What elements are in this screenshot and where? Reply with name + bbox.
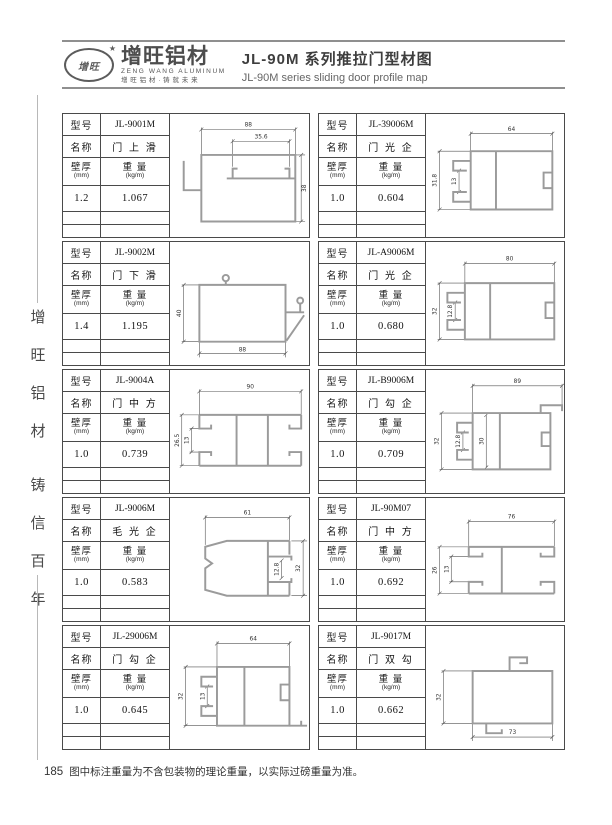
profile-card: 型号 JL-39006M 名称 门 光 企 壁厚(mm) 重 量(kg/m) 1… xyxy=(318,113,565,238)
thickness-value: 1.0 xyxy=(63,570,101,596)
page-title: JL-90M 系列推拉门型材图 xyxy=(242,48,433,69)
thickness-value: 1.0 xyxy=(63,698,101,724)
profile-card: 型号 JL-90M07 名称 门 中 方 壁厚(mm) 重 量(kg/m) 1.… xyxy=(318,497,565,622)
brand-name-cn: 增旺铝材 xyxy=(121,46,226,67)
slogan-char: 增 xyxy=(29,306,47,327)
empty-cell xyxy=(63,596,101,609)
spec-table: 型号 JL-A9006M 名称 门 光 企 壁厚(mm) 重 量(kg/m) 1… xyxy=(319,242,426,365)
name-value: 门 中 方 xyxy=(101,392,169,414)
profile-card: 型号 JL-B9006M 名称 门 勾 企 壁厚(mm) 重 量(kg/m) 1… xyxy=(318,369,565,494)
dim-label: 12.8 xyxy=(448,304,454,317)
weight-header: 重 量(kg/m) xyxy=(101,542,169,570)
slogan-char: 旺 xyxy=(29,344,47,365)
empty-cell xyxy=(319,353,357,365)
thickness-unit: (mm) xyxy=(330,557,345,564)
profile-card: 型号 JL-9004A 名称 门 中 方 壁厚(mm) 重 量(kg/m) 1.… xyxy=(62,369,310,494)
thickness-header: 壁厚(mm) xyxy=(319,286,357,314)
name-value: 毛 光 企 xyxy=(101,520,169,542)
empty-cell xyxy=(63,468,101,481)
dimension-lines: 80 32 12.8 xyxy=(433,257,557,342)
weight-value: 0.604 xyxy=(357,186,425,212)
spec-table: 型号 JL-9004A 名称 门 中 方 壁厚(mm) 重 量(kg/m) 1.… xyxy=(63,370,170,493)
weight-header: 重 量(kg/m) xyxy=(357,286,425,314)
sidebar-vertical-slogan: 增 旺 铝 材 铸 信 百 年 xyxy=(29,306,47,609)
spec-table: 型号 JL-B9006M 名称 门 勾 企 壁厚(mm) 重 量(kg/m) 1… xyxy=(319,370,426,493)
footer-text: 图中标注重量为不含包装物的理论重量，以实际过磅重量为准。 xyxy=(69,764,363,779)
name-value: 门 双 勾 xyxy=(357,648,425,670)
thickness-value: 1.2 xyxy=(63,186,101,212)
thickness-header: 壁厚(mm) xyxy=(63,414,101,442)
dim-label: 13 xyxy=(200,692,206,700)
dim-label: 32 xyxy=(179,692,185,700)
thickness-unit: (mm) xyxy=(330,173,345,180)
profile-outline xyxy=(184,155,296,222)
empty-cell xyxy=(319,737,357,749)
spec-table: 型号 JL-9002M 名称 门 下 滑 壁厚(mm) 重 量(kg/m) 1.… xyxy=(63,242,170,365)
empty-cell xyxy=(319,609,357,621)
dim-label: 73 xyxy=(509,730,517,736)
weight-header: 重 量(kg/m) xyxy=(101,414,169,442)
name-value: 门 光 企 xyxy=(357,264,425,286)
profile-outline xyxy=(469,547,555,594)
empty-cell xyxy=(63,724,101,737)
weight-value: 0.662 xyxy=(357,698,425,724)
profile-drawing: 64 32 13 xyxy=(170,626,309,749)
spec-table: 型号 JL-90M07 名称 门 中 方 壁厚(mm) 重 量(kg/m) 1.… xyxy=(319,498,426,621)
empty-cell xyxy=(319,340,357,353)
profile-card: 型号 JL-A9006M 名称 门 光 企 壁厚(mm) 重 量(kg/m) 1… xyxy=(318,241,565,366)
thickness-value: 1.0 xyxy=(63,442,101,468)
profile-outline xyxy=(447,283,554,339)
dim-label: 64 xyxy=(249,637,257,643)
empty-cell xyxy=(319,481,357,493)
empty-cell xyxy=(319,596,357,609)
dim-label: 80 xyxy=(506,257,514,263)
profile-outline xyxy=(473,657,553,733)
weight-value: 0.583 xyxy=(101,570,169,596)
name-label: 名称 xyxy=(319,264,357,286)
spec-table: 型号 JL-39006M 名称 门 光 企 壁厚(mm) 重 量(kg/m) 1… xyxy=(319,114,426,237)
star-icon: ★ xyxy=(109,44,116,53)
name-label: 名称 xyxy=(63,648,101,670)
thickness-unit: (mm) xyxy=(74,301,89,308)
dim-label: 30 xyxy=(479,437,485,445)
model-value: JL-9002M xyxy=(101,242,169,264)
empty-cell xyxy=(63,340,101,353)
empty-cell xyxy=(101,340,169,353)
empty-cell xyxy=(101,596,169,609)
weight-unit: (kg/m) xyxy=(382,685,400,692)
name-label: 名称 xyxy=(63,136,101,158)
title-block: JL-90M 系列推拉门型材图 JL-90M series sliding do… xyxy=(242,46,433,84)
profile-outline xyxy=(201,667,307,726)
weight-unit: (kg/m) xyxy=(126,301,144,308)
empty-cell xyxy=(357,596,425,609)
spec-table: 型号 JL-9001M 名称 门 上 滑 壁厚(mm) 重 量(kg/m) 1.… xyxy=(63,114,170,237)
dimension-lines: 64 31.8 13 xyxy=(433,127,555,212)
name-label: 名称 xyxy=(319,392,357,414)
thickness-unit: (mm) xyxy=(330,685,345,692)
dimension-lines: 90 26.5 13 xyxy=(175,384,303,467)
dim-label: 76 xyxy=(508,515,516,521)
model-value: JL-9004A xyxy=(101,370,169,392)
company-logo: 增旺 ★ 增旺铝材 ZENG WANG ALUMINUM 增旺铝材·铸就未来 xyxy=(64,46,226,84)
page-number: 185 xyxy=(44,766,63,778)
profile-drawing: 90 26.5 13 xyxy=(170,370,309,493)
weight-header: 重 量(kg/m) xyxy=(101,286,169,314)
thickness-unit: (mm) xyxy=(74,429,89,436)
dim-label: 90 xyxy=(247,384,255,390)
model-label: 型号 xyxy=(319,370,357,392)
weight-unit: (kg/m) xyxy=(126,429,144,436)
name-value: 门 勾 企 xyxy=(101,648,169,670)
weight-header: 重 量(kg/m) xyxy=(357,158,425,186)
empty-cell xyxy=(63,353,101,365)
thickness-header: 壁厚(mm) xyxy=(319,158,357,186)
profile-outline xyxy=(199,415,301,466)
dim-label: 88 xyxy=(245,123,253,129)
page-header: 增旺 ★ 增旺铝材 ZENG WANG ALUMINUM 增旺铝材·铸就未来 J… xyxy=(64,46,433,84)
sidebar-line-bottom xyxy=(37,575,38,760)
weight-unit: (kg/m) xyxy=(382,301,400,308)
name-label: 名称 xyxy=(63,392,101,414)
thickness-unit: (mm) xyxy=(74,685,89,692)
weight-value: 0.692 xyxy=(357,570,425,596)
name-label: 名称 xyxy=(319,520,357,542)
dimension-lines: 64 32 13 xyxy=(179,637,292,728)
dimension-lines: 61 32 12.8 xyxy=(203,510,307,597)
empty-cell xyxy=(357,468,425,481)
slogan-char: 材 xyxy=(29,420,47,441)
weight-value: 0.709 xyxy=(357,442,425,468)
profile-svg: 73 32 xyxy=(426,626,564,749)
model-value: JL-9017M xyxy=(357,626,425,648)
empty-cell xyxy=(357,724,425,737)
spec-table: 型号 JL-9017M 名称 门 双 勾 壁厚(mm) 重 量(kg/m) 1.… xyxy=(319,626,426,749)
name-label: 名称 xyxy=(319,648,357,670)
weight-unit: (kg/m) xyxy=(382,557,400,564)
thickness-value: 1.0 xyxy=(319,314,357,340)
thickness-header: 壁厚(mm) xyxy=(319,670,357,698)
dim-label: 35.6 xyxy=(255,134,268,140)
profile-svg: 61 32 12.8 xyxy=(170,498,309,621)
name-label: 名称 xyxy=(63,520,101,542)
dim-label: 89 xyxy=(514,379,522,385)
empty-cell xyxy=(63,737,101,749)
empty-cell xyxy=(101,212,169,225)
spec-table: 型号 JL-29006M 名称 门 勾 企 壁厚(mm) 重 量(kg/m) 1… xyxy=(63,626,170,749)
thickness-value: 1.0 xyxy=(319,186,357,212)
weight-header: 重 量(kg/m) xyxy=(357,414,425,442)
sidebar-line-top xyxy=(37,95,38,303)
slogan-char: 铸 xyxy=(29,474,47,495)
profile-svg: 88 40 xyxy=(170,242,309,365)
logo-oval-icon: 增旺 ★ xyxy=(64,48,114,82)
profile-drawing: 80 32 12.8 xyxy=(426,242,564,365)
thickness-header: 壁厚(mm) xyxy=(319,542,357,570)
profile-svg: 64 31.8 13 xyxy=(426,114,564,237)
model-label: 型号 xyxy=(63,370,101,392)
page-subtitle: JL-90M series sliding door profile map xyxy=(242,72,433,84)
dim-label: 38 xyxy=(302,184,308,192)
profile-card: 型号 JL-9017M 名称 门 双 勾 壁厚(mm) 重 量(kg/m) 1.… xyxy=(318,625,565,750)
dim-label: 32 xyxy=(435,437,441,445)
dimension-lines: 76 26 13 xyxy=(433,515,557,596)
spec-table: 型号 JL-9006M 名称 毛 光 企 壁厚(mm) 重 量(kg/m) 1.… xyxy=(63,498,170,621)
profile-outline xyxy=(453,151,552,209)
profile-svg: 89 32 12.8 30 xyxy=(426,370,564,493)
dim-label: 64 xyxy=(508,127,516,133)
dim-label: 13 xyxy=(452,177,458,185)
logo-oval-text: 增旺 xyxy=(78,58,100,73)
weight-value: 0.739 xyxy=(101,442,169,468)
thickness-unit: (mm) xyxy=(330,301,345,308)
empty-cell xyxy=(319,724,357,737)
empty-cell xyxy=(319,212,357,225)
profile-drawing: 88 40 xyxy=(170,242,309,365)
dim-label: 12.8 xyxy=(275,562,281,575)
model-label: 型号 xyxy=(63,114,101,136)
empty-cell xyxy=(101,481,169,493)
thickness-header: 壁厚(mm) xyxy=(63,670,101,698)
empty-cell xyxy=(63,225,101,237)
dimension-lines: 73 32 xyxy=(437,669,555,741)
weight-header: 重 量(kg/m) xyxy=(357,542,425,570)
empty-cell xyxy=(357,340,425,353)
dim-label: 26.5 xyxy=(175,434,181,447)
model-value: JL-9006M xyxy=(101,498,169,520)
profile-drawing: 61 32 12.8 xyxy=(170,498,309,621)
model-value: JL-90M07 xyxy=(357,498,425,520)
weight-unit: (kg/m) xyxy=(382,173,400,180)
empty-cell xyxy=(357,481,425,493)
name-label: 名称 xyxy=(319,136,357,158)
empty-cell xyxy=(101,225,169,237)
brand-slogan: 增旺铝材·铸就未来 xyxy=(121,78,226,85)
profile-drawing: 64 31.8 13 xyxy=(426,114,564,237)
thickness-header: 壁厚(mm) xyxy=(63,542,101,570)
weight-header: 重 量(kg/m) xyxy=(101,670,169,698)
thickness-unit: (mm) xyxy=(74,173,89,180)
model-label: 型号 xyxy=(319,242,357,264)
weight-unit: (kg/m) xyxy=(126,557,144,564)
empty-cell xyxy=(101,468,169,481)
name-label: 名称 xyxy=(63,264,101,286)
dimension-lines: 88 40 xyxy=(177,283,288,357)
name-value: 门 中 方 xyxy=(357,520,425,542)
model-value: JL-A9006M xyxy=(357,242,425,264)
profile-drawing: 89 32 12.8 30 xyxy=(426,370,564,493)
empty-cell xyxy=(63,609,101,621)
dim-label: 32 xyxy=(437,693,443,701)
model-value: JL-9001M xyxy=(101,114,169,136)
empty-cell xyxy=(357,609,425,621)
weight-header: 重 量(kg/m) xyxy=(101,158,169,186)
weight-unit: (kg/m) xyxy=(126,685,144,692)
profile-svg: 76 26 13 xyxy=(426,498,564,621)
profile-outline xyxy=(457,405,562,469)
profile-card: 型号 JL-9002M 名称 门 下 滑 壁厚(mm) 重 量(kg/m) 1.… xyxy=(62,241,310,366)
dim-label: 13 xyxy=(185,436,191,444)
empty-cell xyxy=(357,225,425,237)
model-value: JL-29006M xyxy=(101,626,169,648)
empty-cell xyxy=(357,737,425,749)
weight-value: 0.680 xyxy=(357,314,425,340)
slogan-char: 铝 xyxy=(29,382,47,403)
weight-unit: (kg/m) xyxy=(382,429,400,436)
profile-drawing: 73 32 xyxy=(426,626,564,749)
name-value: 门 勾 企 xyxy=(357,392,425,414)
slogan-char: 年 xyxy=(29,588,47,609)
thickness-value: 1.0 xyxy=(319,698,357,724)
name-value: 门 下 滑 xyxy=(101,264,169,286)
profile-grid: 型号 JL-9001M 名称 门 上 滑 壁厚(mm) 重 量(kg/m) 1.… xyxy=(62,113,565,750)
empty-cell xyxy=(101,737,169,749)
dimension-lines: 88 35.6 38 xyxy=(199,123,308,224)
profile-card: 型号 JL-29006M 名称 门 勾 企 壁厚(mm) 重 量(kg/m) 1… xyxy=(62,625,310,750)
thickness-header: 壁厚(mm) xyxy=(63,158,101,186)
profile-drawing: 76 26 13 xyxy=(426,498,564,621)
thickness-unit: (mm) xyxy=(330,429,345,436)
profile-card: 型号 JL-9006M 名称 毛 光 企 壁厚(mm) 重 量(kg/m) 1.… xyxy=(62,497,310,622)
slogan-char: 百 xyxy=(29,550,47,571)
dim-label: 61 xyxy=(244,510,252,516)
catalog-page: 增旺 ★ 增旺铝材 ZENG WANG ALUMINUM 增旺铝材·铸就未来 J… xyxy=(0,0,612,825)
thickness-value: 1.0 xyxy=(319,570,357,596)
empty-cell xyxy=(357,212,425,225)
dim-label: 26 xyxy=(433,566,439,574)
profile-card: 型号 JL-9001M 名称 门 上 滑 壁厚(mm) 重 量(kg/m) 1.… xyxy=(62,113,310,238)
thickness-unit: (mm) xyxy=(74,557,89,564)
slogan-char: 信 xyxy=(29,512,47,533)
empty-cell xyxy=(63,212,101,225)
profile-svg: 88 35.6 38 xyxy=(170,114,309,237)
empty-cell xyxy=(319,468,357,481)
empty-cell xyxy=(101,353,169,365)
profile-svg: 80 32 12.8 xyxy=(426,242,564,365)
footer-note: 185 图中标注重量为不含包装物的理论重量，以实际过磅重量为准。 xyxy=(44,764,363,779)
dim-label: 32 xyxy=(433,307,439,315)
weight-header: 重 量(kg/m) xyxy=(357,670,425,698)
weight-value: 1.067 xyxy=(101,186,169,212)
empty-cell xyxy=(101,609,169,621)
profile-svg: 90 26.5 13 xyxy=(170,370,309,493)
empty-cell xyxy=(101,724,169,737)
dim-label: 13 xyxy=(444,565,450,573)
header-rule-top xyxy=(62,40,565,42)
empty-cell xyxy=(319,225,357,237)
weight-value: 1.195 xyxy=(101,314,169,340)
profile-drawing: 88 35.6 38 xyxy=(170,114,309,237)
empty-cell xyxy=(63,481,101,493)
name-value: 门 上 滑 xyxy=(101,136,169,158)
weight-unit: (kg/m) xyxy=(126,173,144,180)
empty-cell xyxy=(357,353,425,365)
model-value: JL-B9006M xyxy=(357,370,425,392)
weight-value: 0.645 xyxy=(101,698,169,724)
dim-label: 88 xyxy=(239,347,247,353)
profile-outline xyxy=(199,275,304,342)
model-label: 型号 xyxy=(63,498,101,520)
dim-label: 12.8 xyxy=(456,434,462,447)
thickness-value: 1.0 xyxy=(319,442,357,468)
dim-label: 31.8 xyxy=(433,174,439,187)
profile-svg: 64 32 13 xyxy=(170,626,309,749)
name-value: 门 光 企 xyxy=(357,136,425,158)
model-label: 型号 xyxy=(319,114,357,136)
brand-name-en: ZENG WANG ALUMINUM xyxy=(121,69,226,76)
dim-label: 32 xyxy=(296,564,302,572)
brand-block: 增旺铝材 ZENG WANG ALUMINUM 增旺铝材·铸就未来 xyxy=(121,46,226,84)
model-label: 型号 xyxy=(319,626,357,648)
thickness-header: 壁厚(mm) xyxy=(63,286,101,314)
model-value: JL-39006M xyxy=(357,114,425,136)
model-label: 型号 xyxy=(63,242,101,264)
thickness-header: 壁厚(mm) xyxy=(319,414,357,442)
thickness-value: 1.4 xyxy=(63,314,101,340)
model-label: 型号 xyxy=(63,626,101,648)
header-rule-bottom xyxy=(62,87,565,89)
dim-label: 40 xyxy=(177,309,183,317)
model-label: 型号 xyxy=(319,498,357,520)
